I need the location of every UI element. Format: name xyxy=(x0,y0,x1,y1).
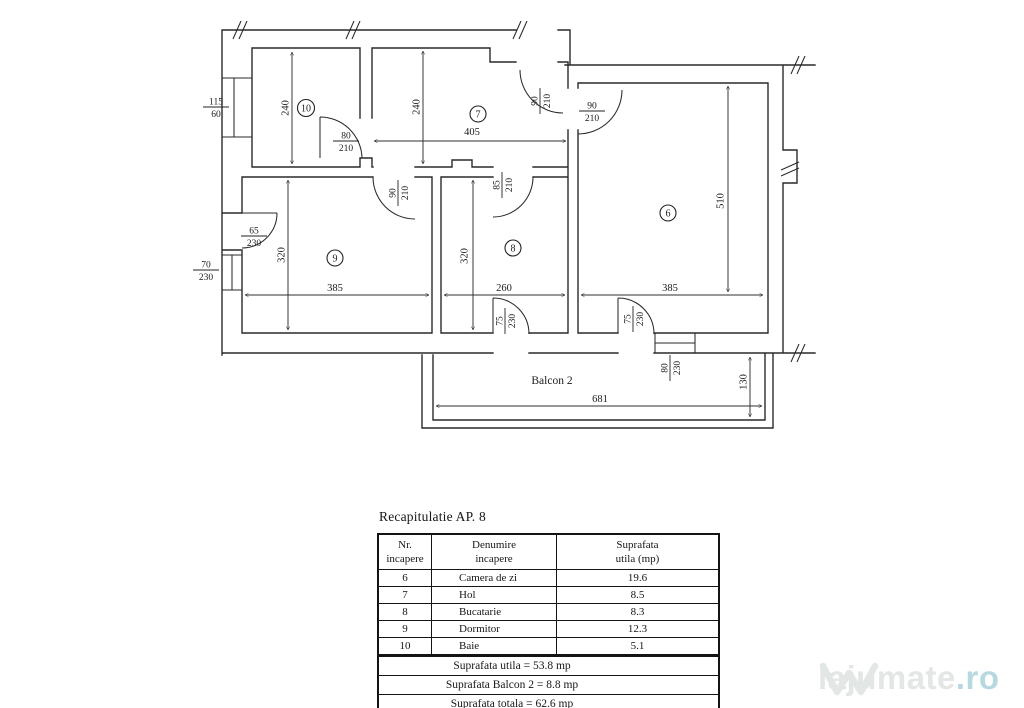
cell-nr: 9 xyxy=(379,621,432,637)
room-number-9: 9 xyxy=(327,250,343,266)
header-nr-incapere: Nr. incapere xyxy=(379,535,432,569)
label-den: 230 xyxy=(508,314,518,329)
label-num: 80 xyxy=(661,363,671,373)
cell-nr: 8 xyxy=(379,604,432,620)
table-row: 6 Camera de zi 19.6 xyxy=(379,570,718,587)
label-num: 70 xyxy=(201,261,211,271)
label-den: 230 xyxy=(673,361,683,376)
label-den: 210 xyxy=(401,186,411,201)
label-den: 210 xyxy=(543,94,553,109)
cell-area: 5.1 xyxy=(557,638,718,654)
wall-break-marks xyxy=(233,21,805,362)
label-den: 210 xyxy=(505,178,515,193)
header-denumire: Denumire incapere xyxy=(432,535,557,569)
room-number-text: 7 xyxy=(476,110,481,121)
label-den: 230 xyxy=(199,273,214,283)
label-num: 85 xyxy=(493,180,503,190)
cell-nr: 6 xyxy=(379,570,432,586)
label-den: 230 xyxy=(247,239,262,249)
dim-room6-height: 510 xyxy=(716,193,727,209)
dim-room6-width: 385 xyxy=(662,283,678,294)
label-num: 75 xyxy=(496,316,506,326)
dim-balcony-width: 681 xyxy=(592,394,608,405)
cell-name: Camera de zi xyxy=(432,570,557,586)
label-num: 90 xyxy=(587,102,597,112)
label-den: 230 xyxy=(636,312,646,327)
dim-hall-width: 405 xyxy=(464,127,480,138)
header-suprafata: Suprafata utila (mp) xyxy=(557,535,718,569)
label-num: 90 xyxy=(531,96,541,106)
dim-balcony-depth: 130 xyxy=(739,374,750,390)
header-line: Nr. xyxy=(398,538,412,552)
table-row: 9 Dormitor 12.3 xyxy=(379,621,718,638)
cell-name: Baie xyxy=(432,638,557,654)
table-row: 8 Bucatarie 8.3 xyxy=(379,604,718,621)
room6-balcony-door-75-230-label: 75 230 xyxy=(624,306,647,332)
table-header-row: Nr. incapere Denumire incapere Suprafata… xyxy=(379,535,718,570)
window-marks xyxy=(222,78,695,353)
cell-name: Bucatarie xyxy=(432,604,557,620)
room-number-text: 10 xyxy=(301,104,311,115)
dim-room7-height: 240 xyxy=(412,99,423,115)
cell-name: Hol xyxy=(432,587,557,603)
watermark-suffix: .ro xyxy=(956,659,1000,696)
dim-room10-height: 240 xyxy=(281,100,292,116)
window-115-60-label: 115 60 xyxy=(203,98,229,121)
room9-door-90-210-label: 90 210 xyxy=(389,180,412,206)
cell-name: Dormitor xyxy=(432,621,557,637)
room9-left-door-65-230-label: 65 230 xyxy=(241,227,267,250)
summary-suprafata-balcon: Suprafata Balcon 2 = 8.8 mp xyxy=(379,675,718,694)
header-line: incapere xyxy=(475,552,512,566)
room8-balcony-door-75-230-label: 75 230 xyxy=(496,308,519,334)
cell-area: 12.3 xyxy=(557,621,718,637)
room-number-10: 10 xyxy=(298,100,315,117)
header-line: utila (mp) xyxy=(616,552,660,566)
cell-area: 19.6 xyxy=(557,570,718,586)
listing-image: 240 240 320 320 510 130 405 385 260 385 … xyxy=(0,0,1024,708)
floor-plan: 240 240 320 320 510 130 405 385 260 385 … xyxy=(0,0,1024,460)
entry-door-90-210-label: 90 210 xyxy=(531,88,554,114)
lajumate-logo-icon xyxy=(818,658,888,700)
dim-room8-height: 320 xyxy=(460,248,471,264)
label-den: 210 xyxy=(339,144,354,154)
balcony-window-80-230-label: 80 230 xyxy=(661,355,684,381)
room6-door-90-210-label: 90 210 xyxy=(579,102,605,125)
label-num: 115 xyxy=(209,98,223,108)
room-number-8: 8 xyxy=(505,240,521,256)
label-num: 75 xyxy=(624,314,634,324)
room8-door-85-210-label: 85 210 xyxy=(493,172,516,198)
table-row: 7 Hol 8.5 xyxy=(379,587,718,604)
room-number-text: 8 xyxy=(511,244,516,255)
opening-size-labels: 115 60 80 210 90 210 90 210 90 xyxy=(193,88,683,381)
dim-room9-width: 385 xyxy=(327,283,343,294)
room-numbers: 10 7 9 8 6 xyxy=(298,100,677,267)
label-num: 90 xyxy=(389,188,399,198)
room-number-text: 6 xyxy=(666,209,671,220)
header-line: Suprafata xyxy=(616,538,658,552)
room-number-text: 9 xyxy=(333,254,338,265)
summary-suprafata-totala: Suprafata totala = 62.6 mp xyxy=(379,694,718,708)
summary-suprafata-utila: Suprafata utila = 53.8 mp xyxy=(379,654,718,675)
watermark: lajumate.ro xyxy=(818,658,1000,698)
balcony-label: Balcon 2 xyxy=(531,375,572,387)
label-den: 60 xyxy=(211,110,221,120)
cell-area: 8.3 xyxy=(557,604,718,620)
header-line: Denumire xyxy=(472,538,516,552)
label-num: 65 xyxy=(249,227,259,237)
label-num: 80 xyxy=(341,132,351,142)
label-den: 210 xyxy=(585,114,600,124)
room-number-7: 7 xyxy=(470,106,486,122)
cell-nr: 10 xyxy=(379,638,432,654)
recap-table: Nr. incapere Denumire incapere Suprafata… xyxy=(377,533,720,708)
cell-area: 8.5 xyxy=(557,587,718,603)
cell-nr: 7 xyxy=(379,587,432,603)
window-70-230-label: 70 230 xyxy=(193,261,219,284)
walls xyxy=(222,30,815,428)
header-line: incapere xyxy=(386,552,423,566)
table-row: 10 Baie 5.1 xyxy=(379,638,718,654)
dim-room9-height: 320 xyxy=(277,247,288,263)
recap-title: Recapitulatie AP. 8 xyxy=(379,509,486,525)
room-number-6: 6 xyxy=(660,205,676,221)
dimension-lines xyxy=(245,51,763,417)
dim-room8-width: 260 xyxy=(496,283,512,294)
